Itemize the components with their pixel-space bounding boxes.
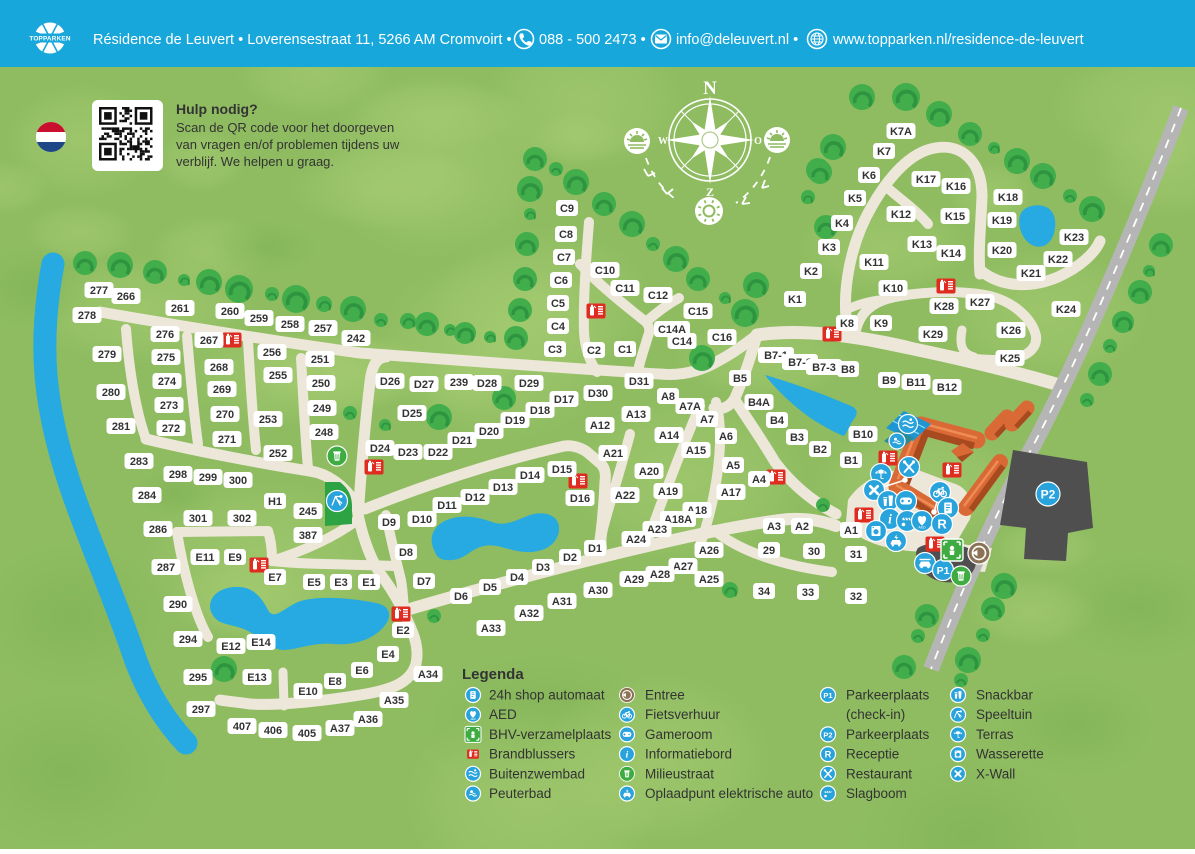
svg-text:K10: K10 bbox=[883, 283, 903, 295]
svg-text:405: 405 bbox=[298, 728, 316, 740]
svg-text:281: 281 bbox=[112, 421, 130, 433]
svg-text:34: 34 bbox=[758, 586, 771, 598]
svg-text:K11: K11 bbox=[864, 257, 884, 269]
svg-text:R: R bbox=[937, 517, 947, 532]
svg-text:A17: A17 bbox=[721, 487, 741, 499]
svg-text:K25: K25 bbox=[1000, 353, 1020, 365]
svg-text:Résidence de Leuvert • Loveren: Résidence de Leuvert • Loverensestraat 1… bbox=[93, 32, 512, 48]
svg-text:K12: K12 bbox=[891, 209, 911, 221]
svg-text:271: 271 bbox=[218, 434, 236, 446]
svg-text:D23: D23 bbox=[398, 447, 418, 459]
svg-text:407: 407 bbox=[233, 721, 251, 733]
svg-text:K23: K23 bbox=[1064, 232, 1084, 244]
svg-text:24h shop automaat: 24h shop automaat bbox=[489, 688, 605, 703]
svg-text:266: 266 bbox=[117, 291, 135, 303]
svg-text:A21: A21 bbox=[603, 448, 623, 460]
svg-text:Parkeerplaats: Parkeerplaats bbox=[846, 727, 930, 742]
svg-text:P1: P1 bbox=[823, 691, 832, 700]
svg-text:Slagboom: Slagboom bbox=[846, 786, 907, 801]
svg-text:Buitenzwembad: Buitenzwembad bbox=[489, 766, 585, 781]
svg-text:P1: P1 bbox=[937, 565, 950, 577]
svg-text:Z: Z bbox=[706, 185, 714, 199]
svg-text:Milieustraat: Milieustraat bbox=[645, 766, 714, 781]
svg-text:E10: E10 bbox=[298, 686, 318, 698]
svg-text:P2: P2 bbox=[823, 730, 832, 739]
svg-text:276: 276 bbox=[156, 329, 174, 341]
svg-text:D10: D10 bbox=[412, 514, 432, 526]
svg-text:B10: B10 bbox=[853, 429, 873, 441]
svg-text:Peuterbad: Peuterbad bbox=[489, 786, 551, 801]
svg-text:Scan de QR code voor het doorg: Scan de QR code voor het doorgeven bbox=[176, 120, 394, 135]
svg-text:E1: E1 bbox=[362, 577, 375, 589]
svg-text:274: 274 bbox=[158, 376, 177, 388]
svg-text:D17: D17 bbox=[554, 394, 574, 406]
svg-text:279: 279 bbox=[98, 349, 116, 361]
svg-text:252: 252 bbox=[269, 448, 287, 460]
svg-text:K7: K7 bbox=[877, 146, 891, 158]
svg-text:A13: A13 bbox=[626, 409, 646, 421]
svg-text:242: 242 bbox=[347, 333, 365, 345]
svg-text:D14: D14 bbox=[520, 470, 541, 482]
svg-text:E12: E12 bbox=[221, 641, 241, 653]
svg-text:Restaurant: Restaurant bbox=[846, 766, 912, 781]
svg-text:A36: A36 bbox=[358, 714, 378, 726]
svg-text:287: 287 bbox=[157, 562, 175, 574]
svg-text:A26: A26 bbox=[699, 545, 719, 557]
svg-text:249: 249 bbox=[313, 403, 331, 415]
svg-text:C4: C4 bbox=[551, 321, 566, 333]
svg-text:284: 284 bbox=[138, 490, 157, 502]
svg-text:D25: D25 bbox=[402, 408, 422, 420]
svg-text:D21: D21 bbox=[452, 435, 472, 447]
svg-text:253: 253 bbox=[259, 414, 277, 426]
svg-text:D7: D7 bbox=[417, 576, 431, 588]
svg-text:248: 248 bbox=[315, 427, 333, 439]
svg-text:D26: D26 bbox=[380, 376, 400, 388]
svg-text:E13: E13 bbox=[247, 672, 267, 684]
svg-text:D20: D20 bbox=[479, 426, 499, 438]
svg-text:E4: E4 bbox=[381, 649, 395, 661]
svg-text:K7A: K7A bbox=[890, 126, 912, 138]
svg-text:D8: D8 bbox=[399, 547, 413, 559]
svg-text:D15: D15 bbox=[552, 464, 572, 476]
svg-text:261: 261 bbox=[171, 303, 189, 315]
svg-text:AED: AED bbox=[489, 707, 517, 722]
svg-text:H1: H1 bbox=[268, 496, 282, 508]
svg-text:verblijf. We helpen u graag.: verblijf. We helpen u graag. bbox=[176, 154, 334, 169]
svg-text:30: 30 bbox=[808, 546, 820, 558]
svg-text:B9: B9 bbox=[882, 375, 896, 387]
svg-text:D5: D5 bbox=[483, 582, 497, 594]
svg-text:A15: A15 bbox=[686, 445, 706, 457]
svg-text:C7: C7 bbox=[557, 252, 571, 264]
svg-text:B7-3: B7-3 bbox=[812, 362, 836, 374]
svg-text:D9: D9 bbox=[382, 517, 396, 529]
svg-text:Snackbar: Snackbar bbox=[976, 688, 1034, 703]
svg-text:C15: C15 bbox=[688, 306, 708, 318]
svg-text:D19: D19 bbox=[505, 415, 525, 427]
svg-text:K2: K2 bbox=[804, 266, 818, 278]
svg-text:A8: A8 bbox=[661, 391, 675, 403]
svg-text:info@deleuvert.nl •: info@deleuvert.nl • bbox=[676, 32, 798, 48]
svg-text:272: 272 bbox=[162, 423, 180, 435]
svg-text:K19: K19 bbox=[992, 215, 1012, 227]
svg-text:www.topparken.nl/residence-de-: www.topparken.nl/residence-de-leuvert bbox=[832, 32, 1084, 48]
svg-text:294: 294 bbox=[179, 634, 198, 646]
svg-text:K9: K9 bbox=[874, 318, 888, 330]
svg-text:B8: B8 bbox=[841, 364, 855, 376]
svg-text:C8: C8 bbox=[559, 229, 573, 241]
svg-text:E8: E8 bbox=[328, 676, 341, 688]
svg-text:A3: A3 bbox=[767, 521, 781, 533]
svg-text:A14: A14 bbox=[659, 430, 680, 442]
svg-text:D22: D22 bbox=[428, 447, 448, 459]
svg-text:B4: B4 bbox=[770, 415, 785, 427]
svg-text:295: 295 bbox=[189, 672, 207, 684]
svg-text:K14: K14 bbox=[941, 248, 962, 260]
svg-text:270: 270 bbox=[216, 409, 234, 421]
svg-text:i: i bbox=[626, 749, 629, 760]
svg-text:C9: C9 bbox=[560, 203, 574, 215]
svg-text:C5: C5 bbox=[551, 298, 565, 310]
svg-text:(check-in): (check-in) bbox=[846, 707, 905, 722]
svg-text:A28: A28 bbox=[650, 569, 670, 581]
svg-text:A12: A12 bbox=[590, 420, 610, 432]
svg-text:A7: A7 bbox=[700, 414, 714, 426]
svg-text:E3: E3 bbox=[334, 577, 347, 589]
svg-text:32: 32 bbox=[850, 591, 862, 603]
svg-text:B11: B11 bbox=[906, 377, 926, 389]
svg-text:AED: AED bbox=[918, 526, 926, 530]
svg-text:D30: D30 bbox=[588, 388, 608, 400]
svg-text:298: 298 bbox=[169, 469, 187, 481]
svg-text:A1: A1 bbox=[844, 525, 858, 537]
svg-text:i: i bbox=[888, 512, 892, 527]
svg-text:A2: A2 bbox=[795, 521, 809, 533]
svg-text:C1: C1 bbox=[618, 344, 632, 356]
svg-text:239: 239 bbox=[450, 377, 468, 389]
svg-text:259: 259 bbox=[250, 313, 268, 325]
svg-text:A24: A24 bbox=[626, 534, 647, 546]
svg-text:A20: A20 bbox=[639, 466, 659, 478]
svg-text:Legenda: Legenda bbox=[462, 666, 524, 683]
svg-text:K3: K3 bbox=[822, 242, 836, 254]
svg-text:302: 302 bbox=[233, 513, 251, 525]
svg-text:Brandblussers: Brandblussers bbox=[489, 747, 576, 762]
svg-text:257: 257 bbox=[314, 323, 332, 335]
svg-text:K5: K5 bbox=[848, 193, 862, 205]
svg-text:TOPPARKEN: TOPPARKEN bbox=[29, 36, 71, 43]
svg-text:D29: D29 bbox=[519, 378, 539, 390]
svg-text:286: 286 bbox=[149, 524, 167, 536]
svg-text:Informatiebord: Informatiebord bbox=[645, 747, 732, 762]
svg-text:D11: D11 bbox=[437, 500, 457, 512]
svg-text:D4: D4 bbox=[510, 572, 525, 584]
svg-text:A7A: A7A bbox=[679, 401, 701, 413]
svg-text:Parkeerplaats: Parkeerplaats bbox=[846, 688, 930, 703]
svg-text:P2: P2 bbox=[1041, 488, 1056, 502]
svg-text:D6: D6 bbox=[454, 591, 468, 603]
svg-text:K6: K6 bbox=[862, 170, 876, 182]
svg-text:C2: C2 bbox=[587, 345, 601, 357]
svg-text:K1: K1 bbox=[788, 294, 802, 306]
svg-text:Terras: Terras bbox=[976, 727, 1014, 742]
svg-text:A35: A35 bbox=[384, 695, 404, 707]
svg-text:N: N bbox=[703, 78, 717, 99]
svg-text:A19: A19 bbox=[658, 486, 678, 498]
svg-text:Oplaadpunt elektrische auto: Oplaadpunt elektrische auto bbox=[645, 786, 813, 801]
svg-text:K17: K17 bbox=[916, 174, 936, 186]
svg-text:E7: E7 bbox=[268, 572, 281, 584]
svg-text:K22: K22 bbox=[1048, 254, 1068, 266]
svg-text:278: 278 bbox=[78, 310, 96, 322]
svg-text:D28: D28 bbox=[477, 378, 497, 390]
svg-text:269: 269 bbox=[213, 384, 231, 396]
svg-text:301: 301 bbox=[189, 513, 207, 525]
svg-text:A32: A32 bbox=[519, 608, 539, 620]
svg-text:K26: K26 bbox=[1001, 325, 1021, 337]
svg-text:A33: A33 bbox=[481, 623, 501, 635]
svg-text:A25: A25 bbox=[699, 574, 719, 586]
svg-text:255: 255 bbox=[269, 370, 287, 382]
svg-text:B3: B3 bbox=[790, 432, 804, 444]
svg-text:D2: D2 bbox=[563, 552, 577, 564]
svg-text:E11: E11 bbox=[196, 552, 215, 564]
svg-text:K18: K18 bbox=[998, 192, 1018, 204]
svg-text:268: 268 bbox=[210, 362, 228, 374]
svg-text:A34: A34 bbox=[418, 669, 439, 681]
svg-text:275: 275 bbox=[157, 352, 175, 364]
svg-text:A6: A6 bbox=[719, 431, 733, 443]
svg-text:277: 277 bbox=[90, 285, 108, 297]
svg-text:AED: AED bbox=[470, 718, 475, 721]
svg-text:A22: A22 bbox=[615, 490, 635, 502]
svg-text:D24: D24 bbox=[370, 443, 391, 455]
svg-text:K28: K28 bbox=[934, 301, 954, 313]
svg-text:A27: A27 bbox=[673, 561, 693, 573]
svg-text:31: 31 bbox=[850, 549, 862, 561]
svg-text:E2: E2 bbox=[396, 625, 409, 637]
svg-text:E14: E14 bbox=[251, 637, 271, 649]
svg-text:250: 250 bbox=[312, 378, 330, 390]
svg-text:B5: B5 bbox=[733, 373, 747, 385]
svg-text:Hulp nodig?: Hulp nodig? bbox=[176, 101, 258, 117]
svg-text:D16: D16 bbox=[570, 493, 590, 505]
svg-text:A37: A37 bbox=[330, 723, 350, 735]
svg-text:A31: A31 bbox=[552, 596, 572, 608]
svg-text:K15: K15 bbox=[945, 211, 965, 223]
svg-text:K24: K24 bbox=[1056, 304, 1077, 316]
svg-text:E5: E5 bbox=[307, 577, 320, 589]
svg-text:K27: K27 bbox=[970, 297, 990, 309]
svg-text:406: 406 bbox=[264, 725, 282, 737]
svg-text:X-Wall: X-Wall bbox=[976, 766, 1015, 781]
svg-text:B12: B12 bbox=[937, 382, 957, 394]
svg-text:van vragen en/of problemen tij: van vragen en/of problemen tijdens uw bbox=[176, 137, 400, 152]
svg-text:C11: C11 bbox=[615, 283, 635, 295]
svg-text:299: 299 bbox=[199, 472, 217, 484]
svg-text:297: 297 bbox=[192, 704, 210, 716]
svg-text:387: 387 bbox=[299, 530, 317, 542]
svg-text:K8: K8 bbox=[840, 318, 854, 330]
svg-text:D27: D27 bbox=[414, 379, 434, 391]
svg-text:Fietsverhuur: Fietsverhuur bbox=[645, 707, 721, 722]
svg-text:BHV-verzamelplaats: BHV-verzamelplaats bbox=[489, 727, 612, 742]
svg-text:260: 260 bbox=[221, 306, 239, 318]
svg-text:C10: C10 bbox=[595, 265, 615, 277]
svg-text:C16: C16 bbox=[712, 332, 732, 344]
svg-text:A30: A30 bbox=[588, 585, 608, 597]
svg-text:29: 29 bbox=[763, 545, 775, 557]
svg-text:C14: C14 bbox=[672, 336, 693, 348]
svg-text:Wasserette: Wasserette bbox=[976, 747, 1044, 762]
svg-text:B1: B1 bbox=[844, 455, 858, 467]
svg-text:D18: D18 bbox=[530, 405, 550, 417]
svg-text:R: R bbox=[825, 749, 832, 759]
svg-text:D31: D31 bbox=[629, 376, 649, 388]
svg-text:C3: C3 bbox=[548, 344, 562, 356]
svg-text:Gameroom: Gameroom bbox=[645, 727, 713, 742]
svg-text:A5: A5 bbox=[726, 460, 740, 472]
svg-text:Receptie: Receptie bbox=[846, 747, 899, 762]
svg-text:K20: K20 bbox=[992, 245, 1012, 257]
svg-text:E6: E6 bbox=[355, 665, 368, 677]
svg-text:C12: C12 bbox=[648, 290, 668, 302]
svg-text:245: 245 bbox=[299, 506, 317, 518]
svg-text:E9: E9 bbox=[228, 552, 241, 564]
svg-text:258: 258 bbox=[281, 319, 299, 331]
svg-text:33: 33 bbox=[802, 587, 814, 599]
svg-text:273: 273 bbox=[160, 400, 178, 412]
svg-text:B4A: B4A bbox=[748, 397, 770, 409]
svg-text:K21: K21 bbox=[1021, 268, 1041, 280]
svg-text:D1: D1 bbox=[588, 543, 602, 555]
svg-text:283: 283 bbox=[130, 456, 148, 468]
svg-text:267: 267 bbox=[200, 335, 218, 347]
svg-text:B2: B2 bbox=[813, 444, 827, 456]
svg-text:290: 290 bbox=[169, 599, 187, 611]
svg-text:Speeltuin: Speeltuin bbox=[976, 707, 1032, 722]
svg-text:D12: D12 bbox=[465, 492, 485, 504]
svg-text:D13: D13 bbox=[493, 482, 513, 494]
svg-text:251: 251 bbox=[311, 354, 329, 366]
svg-text:C6: C6 bbox=[554, 275, 568, 287]
svg-text:K13: K13 bbox=[912, 239, 932, 251]
svg-text:256: 256 bbox=[263, 347, 281, 359]
svg-text:Entree: Entree bbox=[645, 688, 685, 703]
svg-text:A4: A4 bbox=[752, 474, 767, 486]
svg-text:K29: K29 bbox=[923, 329, 943, 341]
svg-text:K16: K16 bbox=[946, 181, 966, 193]
svg-text:W: W bbox=[658, 136, 668, 147]
svg-text:A29: A29 bbox=[624, 574, 644, 586]
svg-text:088 - 500 2473 •: 088 - 500 2473 • bbox=[539, 32, 646, 48]
svg-text:K4: K4 bbox=[835, 218, 850, 230]
svg-text:300: 300 bbox=[229, 475, 247, 487]
svg-text:O: O bbox=[754, 136, 762, 147]
svg-text:D3: D3 bbox=[536, 562, 550, 574]
svg-text:280: 280 bbox=[102, 387, 120, 399]
